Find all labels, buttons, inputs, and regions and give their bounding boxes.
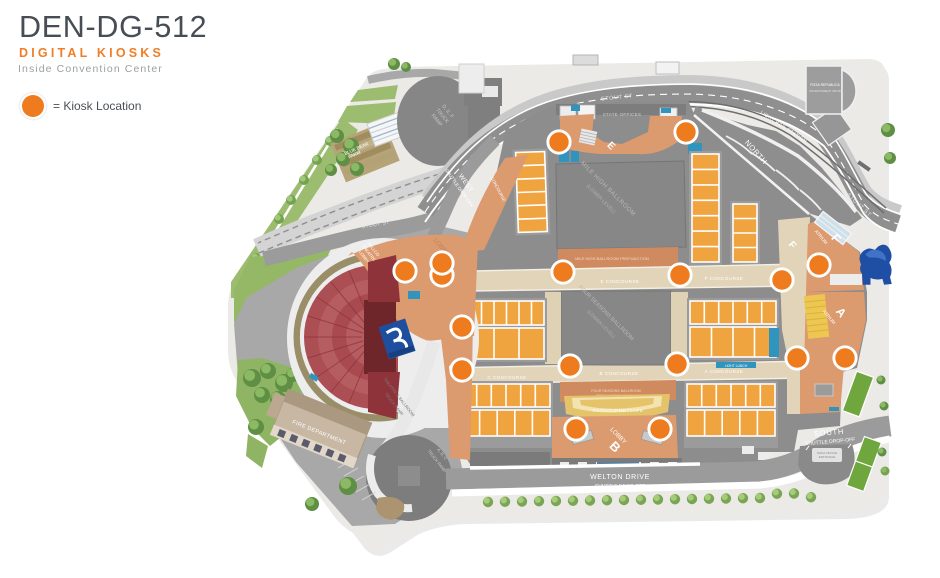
svg-text:SHUTTLE DROP-OFF: SHUTTLE DROP-OFF bbox=[595, 484, 645, 490]
svg-text:PIZZA REPUBLICA: PIZZA REPUBLICA bbox=[810, 83, 840, 87]
svg-text:B CONCOURSE: B CONCOURSE bbox=[599, 371, 638, 376]
svg-text:C CONCOURSE: C CONCOURSE bbox=[487, 375, 526, 380]
svg-text:MILE HIGH BALLROOM PREFUNCTION: MILE HIGH BALLROOM PREFUNCTION bbox=[575, 256, 649, 261]
svg-text:ENTERTAINMENT CENTER: ENTERTAINMENT CENTER bbox=[809, 89, 842, 93]
svg-text:LIGHT LUNCH: LIGHT LUNCH bbox=[725, 364, 748, 368]
svg-text:A CONCOURSE: A CONCOURSE bbox=[705, 369, 744, 374]
svg-text:E CONCOURSE: E CONCOURSE bbox=[600, 279, 639, 284]
svg-text:WELTON DRIVE: WELTON DRIVE bbox=[590, 474, 650, 481]
svg-text:#GOGOURMETCAFE: #GOGOURMETCAFE bbox=[592, 408, 643, 413]
svg-text:FOUR SEASONS BALLROOM: FOUR SEASONS BALLROOM bbox=[591, 389, 641, 393]
svg-text:STATE OFFICES: STATE OFFICES bbox=[603, 112, 642, 117]
svg-text:F CONCOURSE: F CONCOURSE bbox=[705, 276, 744, 281]
svg-text:ENTRANCE: ENTRANCE bbox=[819, 455, 836, 459]
